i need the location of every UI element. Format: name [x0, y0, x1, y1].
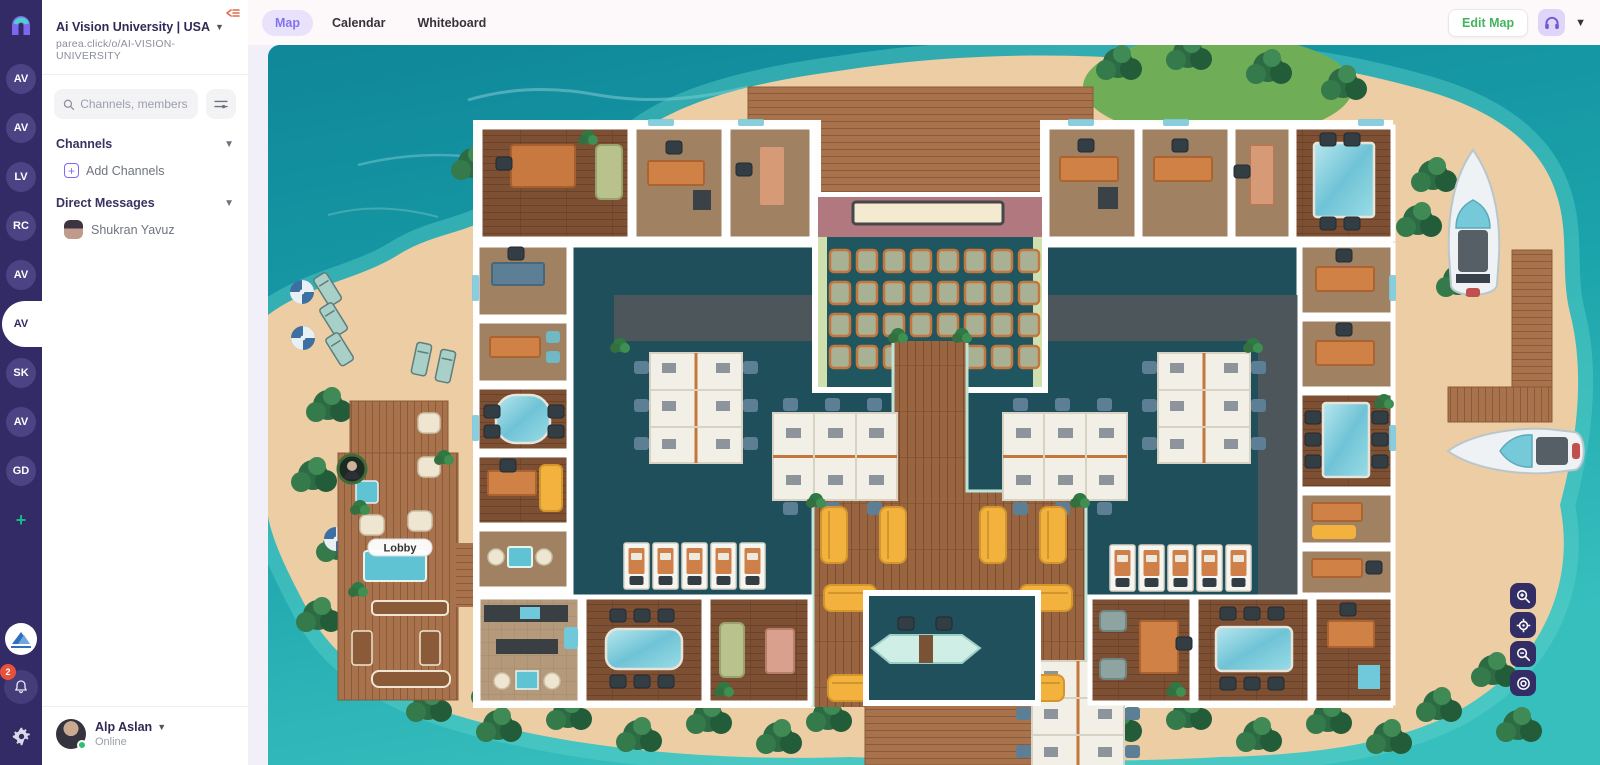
org-logo-avatar[interactable] [5, 623, 37, 655]
room-conference [1294, 127, 1393, 239]
chevron-down-icon: ▼ [224, 198, 234, 209]
room-office [477, 321, 569, 383]
room-office [1314, 597, 1393, 703]
room-office [1300, 245, 1393, 315]
workspace-avatar[interactable]: RC [6, 211, 36, 241]
online-status-dot [77, 740, 87, 750]
audio-settings-button[interactable] [1538, 9, 1565, 36]
room-office [1300, 319, 1393, 389]
building [472, 119, 1396, 765]
room-office [1233, 127, 1291, 239]
room-conference [477, 387, 569, 451]
channels-section-header[interactable]: Channels ▼ [56, 137, 234, 151]
notifications-button[interactable]: 2 [4, 670, 38, 704]
room-conference [584, 597, 704, 703]
plus-square-icon: + [64, 163, 79, 178]
tab-whiteboard[interactable]: Whiteboard [405, 10, 500, 36]
sidebar-footer: Alp Aslan▼ Online [42, 706, 248, 765]
office-map-canvas[interactable]: Lobby [268, 45, 1600, 765]
tab-map[interactable]: Map [262, 10, 313, 36]
workspace-rail: AV AV LV RC AV AV SK AV GD + 2 [0, 0, 42, 765]
chevron-down-icon: ▼ [215, 22, 224, 32]
org-name[interactable]: Ai Vision University | USA▼ [56, 20, 234, 34]
avatar[interactable] [56, 719, 86, 749]
desk-cluster [1142, 353, 1266, 463]
map-controls [1510, 583, 1536, 696]
main-area: Map Calendar Whiteboard Edit Map ▼ [248, 0, 1600, 765]
chevron-down-icon: ▼ [224, 139, 234, 150]
room-office [1047, 127, 1137, 239]
room-office [1300, 493, 1393, 545]
search-box[interactable] [54, 89, 198, 119]
rail-bottom-group: 2 [0, 623, 42, 753]
player-avatar-marker[interactable] [338, 455, 366, 483]
locate-button[interactable] [1510, 612, 1536, 638]
room-lounge [708, 597, 810, 703]
filter-button[interactable] [206, 89, 236, 119]
room-conference [1300, 393, 1394, 489]
filter-sliders-icon [214, 98, 228, 110]
room-office [1090, 597, 1192, 703]
tab-calendar[interactable]: Calendar [319, 10, 399, 36]
workspace-avatar[interactable]: AV [6, 407, 36, 437]
workspace-avatar[interactable]: GD [6, 456, 36, 486]
svg-text:Lobby: Lobby [384, 543, 418, 555]
sidebar: Ai Vision University | USA▼ parea.click/… [42, 0, 248, 765]
room-office [477, 455, 569, 525]
room-office [1300, 549, 1393, 595]
gear-icon [12, 727, 31, 746]
topbar: Map Calendar Whiteboard Edit Map ▼ [248, 0, 1600, 45]
org-header: Ai Vision University | USA▼ parea.click/… [42, 0, 248, 75]
room-kitchen [478, 597, 580, 703]
room-lounge [477, 529, 569, 589]
collapse-sidebar-icon[interactable] [226, 6, 240, 24]
add-channels-button[interactable]: + Add Channels [56, 151, 234, 182]
workspace-avatar[interactable]: AV [6, 113, 36, 143]
chevron-down-icon: ▼ [157, 722, 166, 732]
room-exec-office [480, 127, 630, 239]
app-window: AV AV LV RC AV AV SK AV GD + 2 [0, 0, 1600, 765]
reception [866, 593, 1038, 703]
workspace-avatar[interactable]: LV [6, 162, 36, 192]
workspace-avatar[interactable]: AV [6, 64, 36, 94]
workspace-avatar[interactable]: AV [6, 260, 36, 290]
org-url: parea.click/o/AI-VISION-UNIVERSITY [56, 38, 234, 62]
zoom-out-button[interactable] [1510, 641, 1536, 667]
notification-badge: 2 [0, 664, 16, 680]
current-user-status: Online [95, 736, 166, 748]
room-office [728, 127, 812, 239]
desk-cluster [1003, 398, 1127, 515]
workspace-avatar-active[interactable]: AV [6, 309, 36, 339]
room-conference [1196, 597, 1310, 703]
recenter-button[interactable] [1510, 670, 1536, 696]
desk-cluster [773, 398, 897, 515]
room-office [634, 127, 724, 239]
room-label-lobby: Lobby [368, 539, 432, 556]
parea-logo-icon[interactable] [6, 10, 36, 40]
workspace-avatar[interactable]: SK [6, 358, 36, 388]
edit-map-button[interactable]: Edit Map [1448, 9, 1528, 37]
desk-cluster [634, 353, 758, 463]
room-office [477, 245, 569, 317]
zoom-in-button[interactable] [1510, 583, 1536, 609]
bell-icon [13, 679, 29, 695]
add-workspace-button[interactable]: + [6, 505, 36, 535]
dm-section-header[interactable]: Direct Messages ▼ [56, 196, 234, 210]
search-input[interactable] [80, 97, 189, 111]
headphones-icon [1544, 16, 1560, 30]
search-icon [63, 98, 74, 111]
dm-list-item[interactable]: Shukran Yavuz [56, 210, 234, 239]
chevron-down-icon[interactable]: ▼ [1575, 17, 1586, 29]
current-user-name[interactable]: Alp Aslan▼ [95, 720, 166, 734]
settings-button[interactable] [4, 719, 38, 753]
avatar [64, 220, 83, 239]
room-office [1140, 127, 1230, 239]
workspace-list: AV AV LV RC AV AV SK AV GD + [0, 64, 42, 535]
